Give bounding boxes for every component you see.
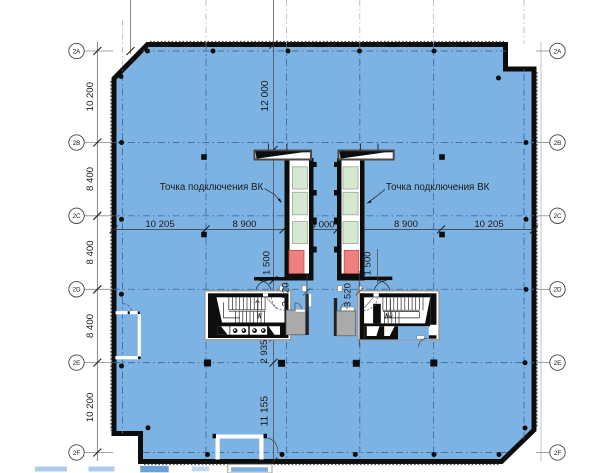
svg-text:2 935: 2 935 — [259, 340, 270, 364]
svg-text:2B: 2B — [554, 140, 562, 147]
svg-text:11 155: 11 155 — [259, 396, 270, 427]
svg-text:2A: 2A — [554, 48, 563, 55]
svg-text:1 500: 1 500 — [363, 251, 374, 275]
svg-text:Точка подключения ВК: Точка подключения ВК — [386, 182, 490, 193]
svg-text:Точка подключения ВК: Точка подключения ВК — [160, 182, 264, 193]
svg-text:8 400: 8 400 — [85, 314, 96, 338]
svg-text:10 200: 10 200 — [85, 393, 96, 422]
svg-text:10 205: 10 205 — [145, 219, 174, 230]
svg-text:2D: 2D — [72, 287, 81, 294]
svg-text:3 520: 3 520 — [281, 282, 292, 306]
svg-text:3 000: 3 000 — [311, 220, 335, 231]
svg-text:2C: 2C — [72, 213, 81, 220]
svg-text:2E: 2E — [554, 360, 562, 367]
svg-text:2F: 2F — [554, 450, 562, 457]
svg-text:10 205: 10 205 — [474, 219, 503, 230]
svg-text:3 520: 3 520 — [343, 283, 354, 307]
svg-text:8 900: 8 900 — [394, 219, 418, 230]
svg-text:2D: 2D — [553, 287, 562, 294]
svg-text:8 400: 8 400 — [85, 167, 96, 191]
svg-text:8 400: 8 400 — [85, 240, 96, 264]
svg-text:10 200: 10 200 — [85, 82, 96, 111]
svg-text:2F: 2F — [73, 450, 81, 457]
svg-text:2B: 2B — [73, 140, 81, 147]
svg-text:2E: 2E — [73, 360, 81, 367]
svg-text:8 900: 8 900 — [232, 219, 256, 230]
svg-text:2C: 2C — [553, 213, 562, 220]
svg-text:2A: 2A — [73, 48, 82, 55]
svg-text:12 000: 12 000 — [260, 80, 271, 111]
svg-text:1 500: 1 500 — [262, 251, 273, 275]
